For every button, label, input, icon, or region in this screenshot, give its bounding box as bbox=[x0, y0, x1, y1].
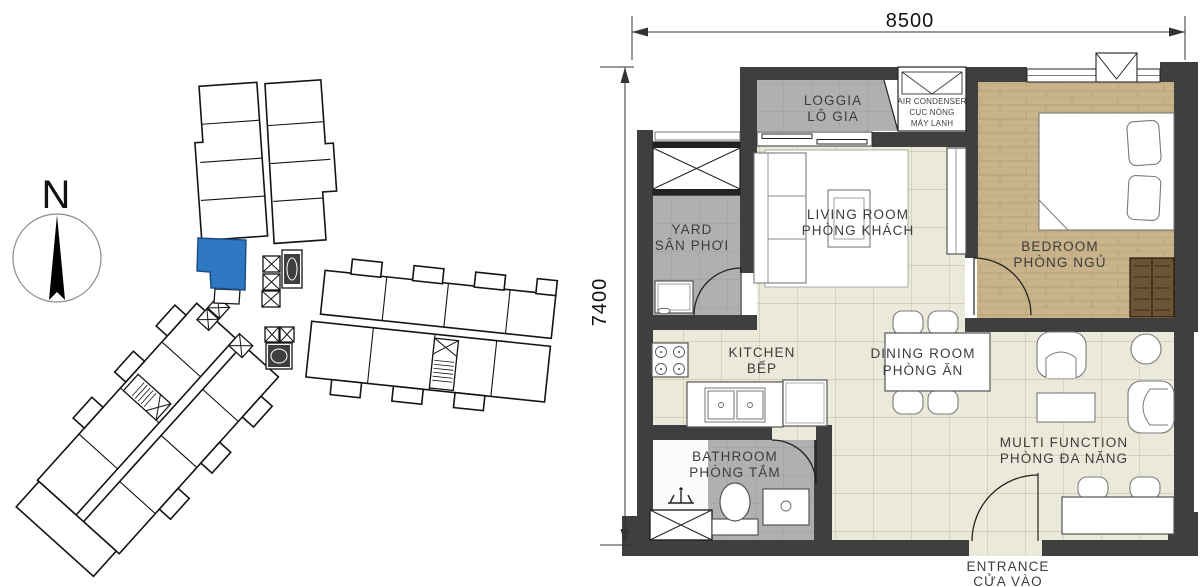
washing-machine bbox=[655, 281, 693, 314]
height-dimension-value: 7400 bbox=[589, 278, 611, 327]
bedroom-label-en: BEDROOM bbox=[1021, 239, 1098, 254]
entrance-threshold bbox=[969, 540, 1042, 556]
loggia-sliding-door bbox=[757, 132, 872, 146]
multi-function-label-vi: PHÒNG ĐA NĂNG bbox=[1000, 451, 1128, 466]
kitchen-label-vi: BẾP bbox=[747, 361, 777, 376]
service-shaft bbox=[653, 132, 740, 195]
stair-core-east bbox=[429, 338, 458, 390]
elevator-core-1 bbox=[282, 250, 302, 288]
elevator-core-2 bbox=[266, 343, 292, 369]
sofa bbox=[754, 153, 806, 283]
bathroom-sink bbox=[763, 489, 809, 525]
compass-north-label: N bbox=[42, 173, 71, 217]
selected-unit-highlight[interactable] bbox=[197, 238, 246, 290]
bathroom-label-vi: PHÒNG TẮM bbox=[689, 465, 780, 480]
tv-cabinet bbox=[947, 148, 966, 254]
building-wing-east bbox=[304, 256, 557, 417]
bathroom-label-en: BATHROOM bbox=[692, 449, 778, 464]
dining-room-label-vi: PHÒNG ĂN bbox=[883, 363, 964, 378]
apartment-plan: LOGGIA LÔ GIA AIR CONDENSER CỤC NÓNG MÁY… bbox=[589, 10, 1198, 587]
living-room-label-vi: PHÒNG KHÁCH bbox=[802, 223, 915, 238]
compass-needle-icon bbox=[49, 215, 65, 300]
air-condenser-label-2: CỤC NÓNG bbox=[909, 108, 954, 117]
bathroom-shaft bbox=[650, 510, 712, 540]
floorplan-canvas: N bbox=[0, 0, 1200, 587]
building-wing-north bbox=[191, 77, 340, 248]
kitchen-label-en: KITCHEN bbox=[729, 345, 796, 360]
air-condenser-label-3: MÁY LẠNH bbox=[911, 119, 953, 128]
yard-label-en: YARD bbox=[672, 222, 713, 237]
floorplan-page: N bbox=[0, 0, 1200, 587]
building-wing-southwest bbox=[4, 293, 290, 587]
site-plan: N bbox=[4, 77, 558, 587]
multi-function-label-en: MULTI FUNCTION bbox=[1000, 435, 1128, 450]
entrance-label-en: ENTRANCE bbox=[966, 559, 1049, 574]
living-room-label-en: LIVING ROOM bbox=[807, 207, 909, 222]
bedroom-label-vi: PHÒNG NGỦ bbox=[1013, 255, 1106, 270]
yard-label-vi: SÂN PHƠI bbox=[655, 238, 729, 253]
bedroom-window bbox=[1027, 69, 1160, 82]
entrance-label-vi: CỬA VÀO bbox=[973, 574, 1043, 587]
wardrobe bbox=[1130, 258, 1174, 317]
side-table bbox=[1037, 393, 1095, 422]
loggia-label-vi: LÔ GIA bbox=[807, 109, 859, 124]
stove bbox=[652, 343, 688, 377]
compass: N bbox=[13, 173, 101, 302]
ac-outdoor-unit-icon bbox=[1096, 53, 1137, 82]
round-side-table bbox=[1131, 334, 1161, 364]
height-dimension: 7400 bbox=[589, 67, 634, 545]
kitchen-counter-sink bbox=[687, 382, 783, 427]
bed bbox=[1039, 113, 1174, 230]
armchair-right bbox=[1128, 381, 1174, 433]
fridge bbox=[783, 380, 827, 426]
width-dimension-value: 8500 bbox=[886, 10, 935, 32]
armchair-top bbox=[1037, 332, 1086, 378]
dining-room-label-en: DINING ROOM bbox=[870, 346, 975, 361]
loggia-label-en: LOGGIA bbox=[804, 93, 862, 108]
air-condenser-label-1: AIR CONDENSER bbox=[897, 97, 966, 106]
